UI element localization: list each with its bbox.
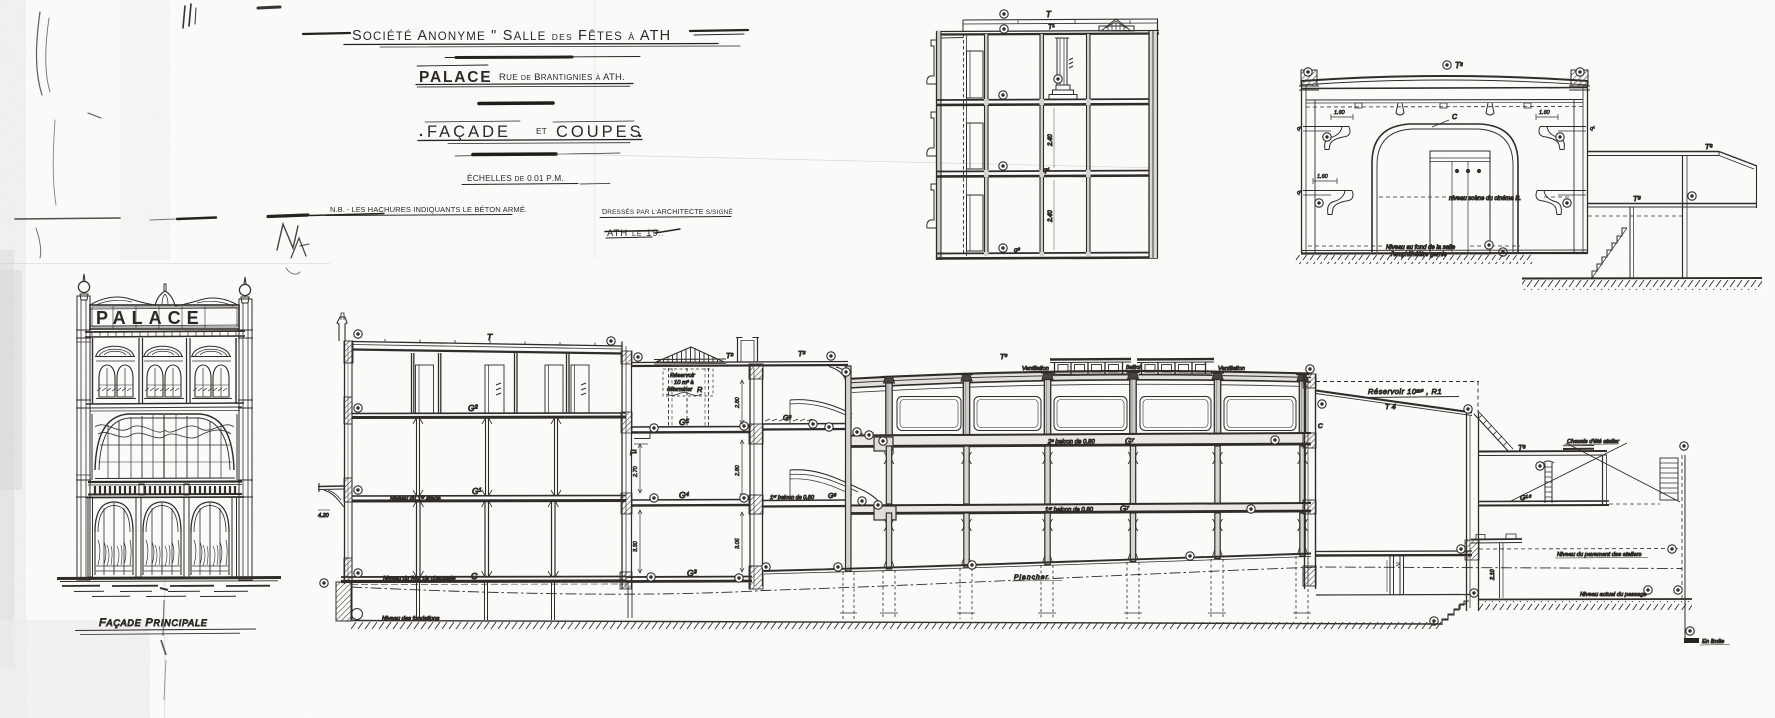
svg-text:Niveau du Rez de chaussée: Niveau du Rez de chaussée (383, 576, 456, 582)
svg-text:q⁴: q⁴ (1043, 167, 1050, 174)
svg-text:Réservoir 10ᵐ³ , R1: Réservoir 10ᵐ³ , R1 (1368, 387, 1442, 396)
svg-text:2.40: 2.40 (1048, 210, 1054, 223)
svg-text:T³: T³ (1455, 61, 1463, 70)
svg-text:G³: G³ (687, 568, 698, 578)
svg-text:G⁷: G⁷ (1120, 505, 1130, 514)
svg-text:2.10: 2.10 (1490, 568, 1496, 581)
svg-text:2.80: 2.80 (735, 396, 741, 409)
svg-text:T 4: T 4 (1385, 402, 1396, 411)
svg-text:G: G (471, 571, 478, 581)
svg-text:Niveau du pavement des atelier: Niveau du pavement des ateliers (1557, 552, 1642, 558)
svg-text:T⁶: T⁶ (1518, 443, 1526, 452)
svg-text:T: T (487, 332, 493, 342)
svg-text:T²: T² (726, 351, 734, 360)
svg-text:T²: T² (798, 349, 806, 358)
svg-text:RUE DE BRANTIGNIES À ATH.: RUE DE BRANTIGNIES À ATH. (499, 72, 625, 83)
svg-text:1ᵉʳ balcon de 0.80: 1ᵉʳ balcon de 0.80 (1045, 507, 1094, 514)
svg-text:q²: q² (1297, 190, 1302, 196)
svg-text:3.05: 3.05 (735, 537, 741, 549)
svg-text:DRESSÉS PAR L'ARCHITECTE S/SIG: DRESSÉS PAR L'ARCHITECTE S/SIGNÉ (602, 207, 733, 216)
svg-text:G⁶: G⁶ (828, 493, 836, 500)
svg-text:ET: ET (536, 126, 547, 136)
svg-text:PALACE: PALACE (419, 69, 492, 86)
svg-text:SOCIÉTÉ ANONYME " SALLE DES FÊ: SOCIÉTÉ ANONYME " SALLE DES FÊTES À ATH (352, 28, 671, 44)
svg-text:q¹: q¹ (1297, 126, 1302, 132)
svg-text:G¹: G¹ (472, 486, 482, 496)
svg-text:Beffroi: Beffroi (1126, 365, 1141, 371)
svg-text:1.60: 1.60 (1334, 110, 1346, 116)
svg-text:G⁵: G⁵ (679, 417, 690, 427)
svg-text:G⁴: G⁴ (679, 490, 690, 500)
svg-text:2.70: 2.70 (633, 465, 639, 478)
svg-text:1ᵉʳ balcon de 0.80: 1ᵉʳ balcon de 0.80 (770, 494, 815, 501)
svg-text:q¹: q¹ (1590, 126, 1595, 132)
svg-text:Ventilation: Ventilation (1218, 366, 1245, 372)
svg-text:FAÇADE PRINCIPALE: FAÇADE PRINCIPALE (99, 617, 208, 629)
svg-text:T⁸: T⁸ (1633, 194, 1641, 203)
svg-text:F¹: F¹ (630, 450, 637, 457)
svg-text:COUPES: COUPES (556, 123, 644, 141)
svg-text:R: R (697, 385, 703, 394)
svg-text:Niveau actuel du passage: Niveau actuel du passage (1580, 592, 1647, 598)
svg-text:PALACE: PALACE (96, 308, 205, 328)
svg-text:T³: T³ (1000, 352, 1008, 361)
svg-text:2.40: 2.40 (1048, 134, 1054, 147)
svg-text:1.60: 1.60 (1317, 174, 1329, 180)
svg-text:3.30: 3.30 (633, 540, 639, 552)
svg-text:T¹: T¹ (1048, 24, 1055, 31)
svg-text:FAÇADE: FAÇADE (427, 123, 511, 141)
svg-text:Ventilation: Ventilation (1022, 366, 1049, 372)
svg-text:Réservoir: Réservoir (670, 373, 696, 379)
svg-text:2.80: 2.80 (735, 464, 741, 477)
svg-text:C: C (1318, 423, 1323, 430)
svg-text:niveau scène du cinéma B.: niveau scène du cinéma B. (1449, 196, 1521, 202)
svg-text:N.B. - LES HACHURES INDIQUANTS: N.B. - LES HACHURES INDIQUANTS LE BÉTON … (330, 205, 527, 214)
svg-text:1.60: 1.60 (1539, 110, 1551, 116)
svg-text:déterminer: déterminer (667, 387, 693, 393)
svg-text:G²: G² (468, 403, 479, 413)
svg-text:G⁷: G⁷ (1125, 437, 1135, 446)
svg-text:T⁶: T⁶ (1705, 142, 1713, 151)
svg-text:Niveau du 1ᵉʳ étage: Niveau du 1ᵉʳ étage (390, 495, 441, 502)
svg-text:4.20: 4.20 (318, 513, 330, 519)
svg-text:q³: q³ (1014, 247, 1021, 254)
svg-text:10 m³ à: 10 m³ à (674, 380, 694, 386)
svg-text:Niveau des fondations: Niveau des fondations (382, 616, 439, 622)
svg-text:En limite: En limite (1702, 639, 1725, 645)
svg-text:2ᵉ balcon de 0.80: 2ᵉ balcon de 0.80 (1047, 440, 1095, 446)
